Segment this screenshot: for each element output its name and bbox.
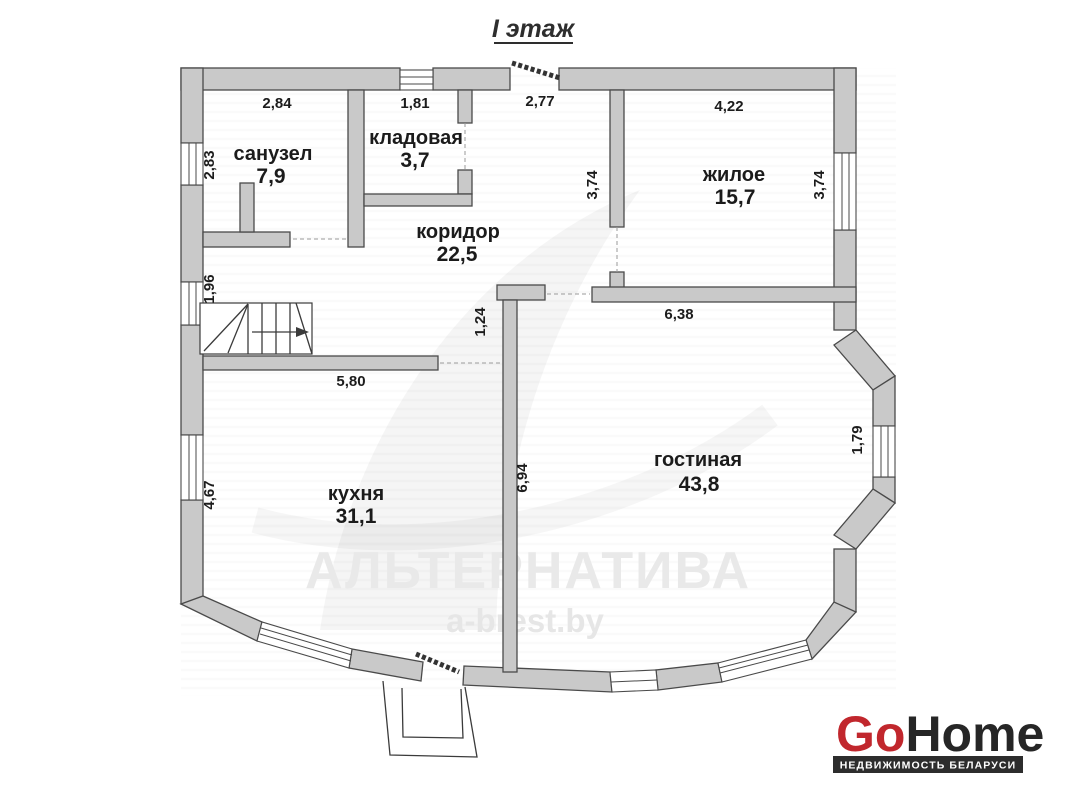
wall	[592, 287, 856, 302]
dimension: 2,77	[525, 93, 554, 110]
window	[873, 426, 895, 477]
dimension: 6,38	[664, 306, 693, 323]
dimension: 1,96	[201, 274, 218, 303]
wall	[834, 68, 856, 153]
window	[834, 153, 856, 230]
wall	[497, 285, 545, 300]
floor-plan-canvas: АЛЬТЕРНАТИВА a-brest.by I этаж	[0, 0, 1068, 800]
floor-title: I этаж	[492, 15, 576, 43]
wall	[834, 230, 856, 330]
window	[400, 70, 433, 90]
dimension: 1,79	[849, 425, 866, 454]
floor-plan-page: АЛЬТЕРНАТИВА a-brest.by I этаж	[0, 0, 1068, 800]
wall	[610, 90, 624, 227]
logo-go: Go	[836, 706, 905, 762]
room-area: 3,7	[400, 149, 429, 172]
room-area: 15,7	[715, 186, 756, 209]
room-label: кладовая	[369, 127, 463, 149]
dimension: 3,74	[811, 170, 828, 200]
watermark-brand: АЛЬТЕРНАТИВА	[305, 542, 751, 600]
dimension: 1,81	[400, 95, 429, 112]
wall	[181, 185, 203, 282]
room-area: 43,8	[679, 473, 720, 496]
dimension: 5,80	[336, 373, 365, 390]
room-label: гостиная	[654, 449, 742, 471]
logo-home: Home	[905, 706, 1044, 762]
window	[181, 435, 203, 500]
wall	[458, 90, 472, 123]
stairs	[200, 303, 312, 354]
room-label: санузел	[234, 143, 313, 165]
dimension: 4,22	[714, 98, 743, 115]
room-label: жилое	[702, 164, 765, 186]
wall	[458, 170, 472, 194]
wall	[559, 68, 856, 90]
window	[181, 143, 203, 185]
wall	[834, 549, 856, 612]
dimension: 2,84	[262, 95, 292, 112]
watermark-site: a-brest.by	[446, 602, 604, 639]
stairs-outline	[200, 303, 312, 354]
logo-text: GoHome	[836, 706, 1044, 762]
dimension: 3,74	[584, 170, 601, 200]
wall	[240, 183, 254, 232]
room-label: кухня	[328, 483, 384, 505]
room-area: 31,1	[336, 505, 377, 528]
wall	[181, 68, 203, 143]
wall	[203, 356, 438, 370]
wall	[433, 68, 510, 90]
wall	[203, 232, 290, 247]
floor-title-text: I этаж	[492, 15, 576, 43]
dimension: 6,94	[514, 463, 531, 493]
dimension: 1,24	[472, 307, 489, 337]
dimension: 2,83	[201, 150, 218, 179]
wall	[181, 68, 400, 90]
room-label: коридор	[416, 221, 500, 243]
wall	[181, 500, 203, 604]
dimension: 4,67	[201, 480, 218, 509]
logo-tagline: НЕДВИЖИМОСТЬ БЕЛАРУСИ	[840, 760, 1016, 772]
wall	[348, 90, 364, 247]
room-area: 22,5	[437, 243, 478, 266]
wall	[364, 194, 472, 206]
brand-logo: GoHome НЕДВИЖИМОСТЬ БЕЛАРУСИ	[833, 706, 1044, 773]
room-area: 7,9	[256, 165, 285, 188]
